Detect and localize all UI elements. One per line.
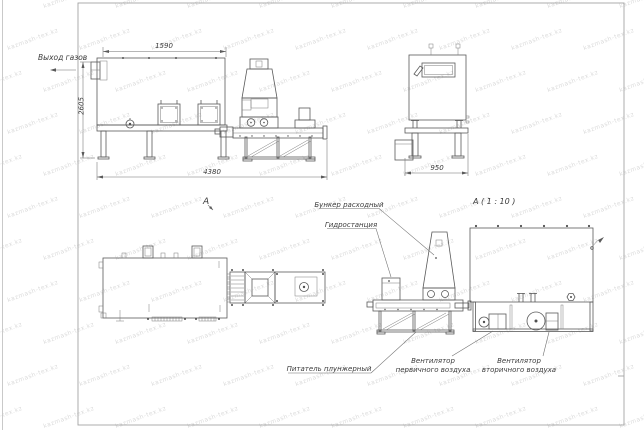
- secondary-fan-callout: Вентилятор вторичного воздуха: [482, 332, 556, 374]
- right-pedestal: [295, 108, 315, 128]
- hopper-tower-side: [240, 59, 278, 128]
- furnace-body: [97, 57, 225, 125]
- furnace-door-1: [158, 100, 180, 125]
- feeder-support-frame: [243, 137, 315, 161]
- secondary-fan-label-2: вторичного воздуха: [482, 366, 556, 374]
- end-view-body: [409, 55, 466, 120]
- detail-view: [367, 225, 604, 334]
- dimension-1590: 1590: [103, 42, 226, 57]
- plan-view: [99, 246, 325, 321]
- plan-hopper: [245, 272, 275, 303]
- primary-fan-label-1: Вентилятор: [411, 357, 455, 365]
- gas-flow-arrow: [50, 68, 56, 71]
- gas-outlet-callout: Выход газов: [38, 53, 87, 72]
- dim-1590-text: 1590: [155, 42, 173, 50]
- detail-title: A ( 1 : 10 ): [472, 197, 515, 206]
- gas-outlet-stub: [91, 61, 107, 80]
- annotations: Выход газов 1590 2605: [38, 42, 556, 374]
- detail-feeder: [367, 300, 471, 311]
- plan-feeder-box: [275, 272, 325, 303]
- dim-2605-text: 2605: [78, 97, 86, 115]
- plan-furnace: [103, 258, 227, 318]
- view-a-mark: A: [202, 197, 213, 210]
- drawing-sheet: kazmash-tex.kzkazmash-tex.kzkazmash-tex.…: [0, 0, 644, 430]
- gas-outlet-label: Выход газов: [38, 53, 87, 62]
- border-frame: [78, 3, 624, 425]
- dimension-4380: 4380: [97, 140, 327, 180]
- furnace-door-2: [198, 100, 220, 125]
- detail-furnace: [470, 225, 604, 302]
- detail-support-frame: [377, 311, 454, 334]
- detail-hopper-tower: [423, 232, 455, 300]
- secondary-fan-label-1: Вентилятор: [497, 357, 541, 365]
- hydraulic-box-end: [395, 140, 413, 160]
- valve-fitting: [126, 118, 134, 128]
- primary-fan-label-2: первичного воздуха: [396, 366, 471, 374]
- end-view: [395, 44, 469, 160]
- view-a-letter: A: [202, 197, 209, 207]
- side-view: [91, 57, 327, 161]
- dimension-2605: 2605: [78, 62, 96, 158]
- hydraulic-station-label: Гидростанция: [325, 221, 377, 229]
- drawing-canvas: Выход газов 1590 2605: [0, 0, 644, 430]
- detail-hydraulic-station: [382, 278, 400, 300]
- secondary-air-fan: [527, 312, 558, 330]
- plunger-feeder-label: Питатель плунжерный: [287, 365, 372, 373]
- primary-air-fan: [479, 314, 506, 329]
- end-view-opening: [422, 63, 455, 77]
- feed-hopper-label: Бункер расходный: [314, 201, 384, 209]
- dim-4380-text: 4380: [203, 168, 221, 176]
- hydraulic-station-callout: Гидростанция: [325, 221, 391, 277]
- plan-grate: [227, 272, 245, 303]
- support-table: [97, 125, 229, 159]
- dim-950-text: 950: [430, 164, 444, 172]
- dimension-950: 950: [405, 134, 468, 176]
